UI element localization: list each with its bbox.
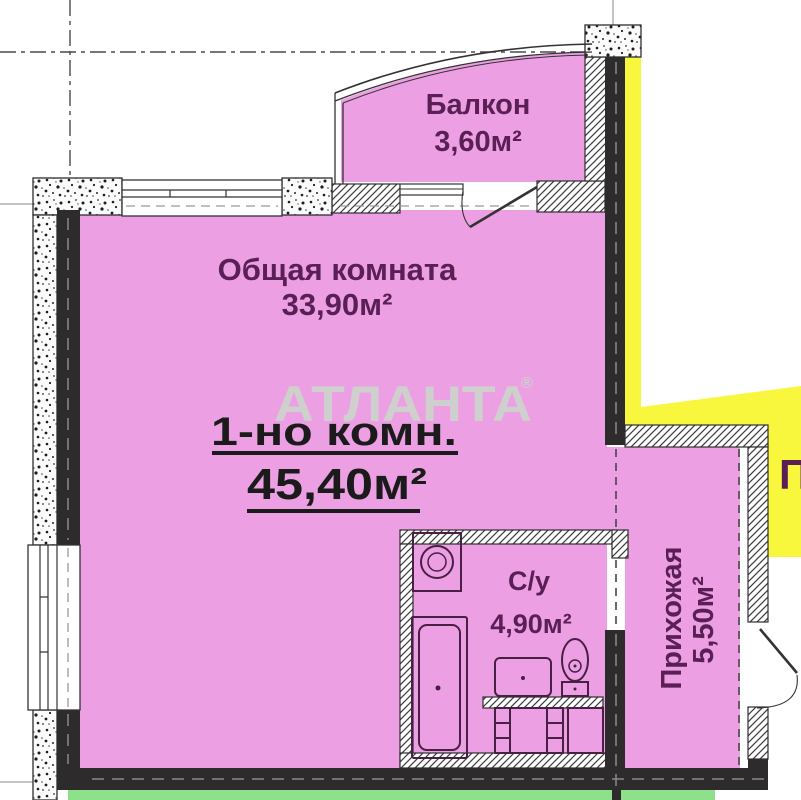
hallway-area-label: 5,50м²	[688, 576, 720, 664]
bathroom-bottom-wall	[400, 753, 614, 768]
bathroom-area-label: 4,90м²	[490, 609, 572, 639]
summary-divider-bottom	[247, 509, 420, 513]
entry-wall-stub	[748, 759, 768, 769]
right-wall-upper	[605, 57, 625, 445]
neighbor-apartment-label: П	[779, 451, 801, 498]
balcony-name-label: Балкон	[426, 89, 531, 121]
bathroom-name-label: С/у	[508, 566, 550, 596]
top-window	[122, 180, 282, 216]
hallway-name-label: Прихожая	[656, 546, 688, 689]
right-wall-lower	[605, 630, 625, 790]
floor-plan: АТЛАНТА ® Балкон 3,60м² Общая комната 33…	[0, 0, 801, 800]
top-wall-mid-segment	[282, 178, 332, 215]
living-room-area-label: 33,90м²	[282, 287, 393, 322]
top-wall-left-segment	[33, 178, 122, 215]
left-window	[28, 545, 80, 710]
registered-trademark-icon: ®	[521, 375, 533, 392]
balcony-sill-wall-left	[332, 184, 400, 213]
hallway-right-wall-lower	[748, 707, 768, 759]
apartment-total-area-label: 45,40м²	[247, 460, 427, 509]
left-outer-wall-lower	[33, 710, 57, 800]
balcony-area-label: 3,60м²	[434, 126, 522, 158]
apartment-summary: 1-но комн. 45,40м²	[211, 410, 458, 513]
hallway-right-wall-upper	[748, 447, 768, 622]
summary-divider-top	[212, 451, 458, 455]
left-outer-wall-upper	[33, 215, 57, 545]
room-hallway-opening-floor	[607, 447, 625, 530]
living-room-name-label: Общая комната	[218, 252, 457, 287]
top-right-pier	[585, 25, 641, 57]
wall-pier-through-landing	[612, 790, 621, 800]
floor-plan-drawing: АТЛАНТА ® Балкон 3,60м² Общая комната 33…	[0, 0, 801, 800]
apartment-type-label: 1-но комн.	[211, 410, 457, 454]
hallway-top-wall	[625, 425, 768, 447]
bathroom-corner-block	[612, 530, 628, 558]
balcony-sill-wall-right	[537, 181, 605, 212]
balcony-right-wall	[585, 57, 607, 181]
bathroom-counter	[483, 697, 603, 708]
